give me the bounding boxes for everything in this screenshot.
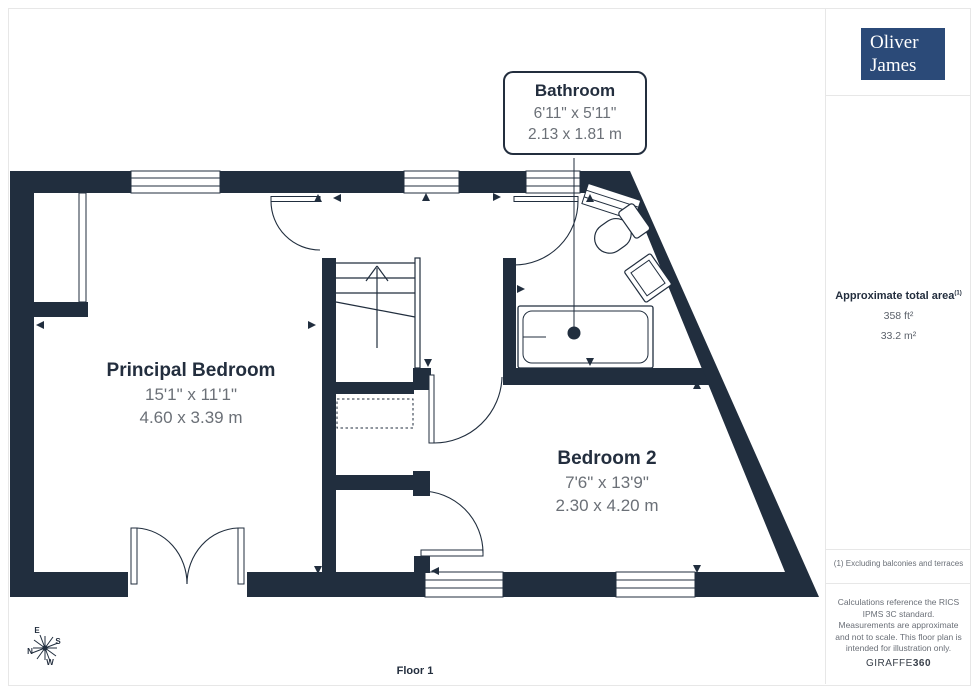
room-dim-metric: 4.60 x 3.39 m — [41, 406, 341, 429]
total-area-note-ref: (1) — [954, 290, 961, 296]
room-dim-imperial: 6'11" x 5'11" — [505, 103, 645, 124]
door-bedroom2 — [429, 375, 502, 443]
floorplan-page: Principal Bedroom 15'1" x 11'1" 4.60 x 3… — [0, 0, 980, 693]
sidebar-divider — [826, 549, 971, 550]
total-area-ft: 358 ft² — [826, 310, 971, 322]
floorplan-drawing — [0, 0, 825, 693]
stairs — [336, 258, 420, 368]
logo-line2: James — [870, 54, 945, 77]
room-dim-imperial: 7'6" x 13'9" — [482, 471, 732, 494]
principal-bedroom-label: Principal Bedroom 15'1" x 11'1" 4.60 x 3… — [41, 358, 341, 429]
compass-e: E — [32, 626, 42, 635]
wall-cupboard-mid — [322, 475, 416, 490]
room-name: Bedroom 2 — [482, 446, 732, 471]
window-top-left — [131, 171, 220, 193]
floor-label: Floor 1 — [370, 665, 460, 677]
wall-cupboard-top — [336, 382, 414, 394]
window-top-middle — [404, 171, 459, 193]
footnote: (1) Excluding balconies and terraces — [826, 559, 971, 568]
total-area-block: Approximate total area(1) 358 ft² 33.2 m… — [826, 290, 971, 342]
window-bottom-right — [616, 572, 695, 597]
bathtub — [518, 306, 653, 368]
sidebar-divider — [826, 95, 971, 96]
door-bathroom — [514, 197, 578, 266]
agency-logo: Oliver James — [861, 28, 945, 80]
logo-line1: Oliver — [870, 31, 945, 54]
room-dim-metric: 2.13 x 1.81 m — [505, 124, 645, 145]
stair-banister — [415, 258, 420, 368]
total-area-title-text: Approximate total area — [835, 290, 954, 302]
compass-n: N — [25, 647, 35, 656]
compass-s: S — [53, 637, 63, 646]
giraffe360-brand: GIRAFFE360 — [826, 658, 971, 669]
wall-block-hall — [413, 368, 431, 390]
door-cupboard — [421, 491, 483, 556]
total-area-m: 33.2 m² — [826, 330, 971, 342]
room-name: Principal Bedroom — [41, 358, 341, 383]
sidebar-divider — [826, 583, 971, 584]
bathroom-fixtures — [518, 203, 672, 368]
door-principal-bedroom — [271, 197, 320, 251]
bathroom-callout: Bathroom 6'11" x 5'11" 2.13 x 1.81 m — [503, 71, 647, 155]
closet-panel — [79, 193, 86, 302]
wall-block-bottom — [414, 556, 430, 573]
wall-closet-stub — [34, 302, 88, 317]
brand-normal: GIRAFFE — [866, 658, 913, 669]
window-bathroom-top — [526, 171, 580, 193]
stair-break-line — [336, 302, 415, 317]
compass-w: W — [45, 658, 55, 667]
void-dashed-box — [337, 399, 413, 428]
bedroom2-label: Bedroom 2 7'6" x 13'9" 2.30 x 4.20 m — [482, 446, 732, 517]
info-sidebar: Oliver James Approximate total area(1) 3… — [825, 8, 971, 684]
room-name: Bathroom — [505, 79, 645, 103]
disclaimer: Calculations reference the RICS IPMS 3C … — [834, 597, 963, 655]
room-dim-metric: 2.30 x 4.20 m — [482, 494, 732, 517]
wall-block-mid — [413, 471, 430, 496]
wall-bathroom-south — [503, 368, 709, 385]
wall-bathroom-west — [503, 258, 516, 368]
window-bottom-left — [425, 572, 503, 597]
room-dim-imperial: 15'1" x 11'1" — [41, 383, 341, 406]
total-area-title: Approximate total area(1) — [826, 290, 971, 302]
brand-bold: 360 — [913, 658, 931, 669]
